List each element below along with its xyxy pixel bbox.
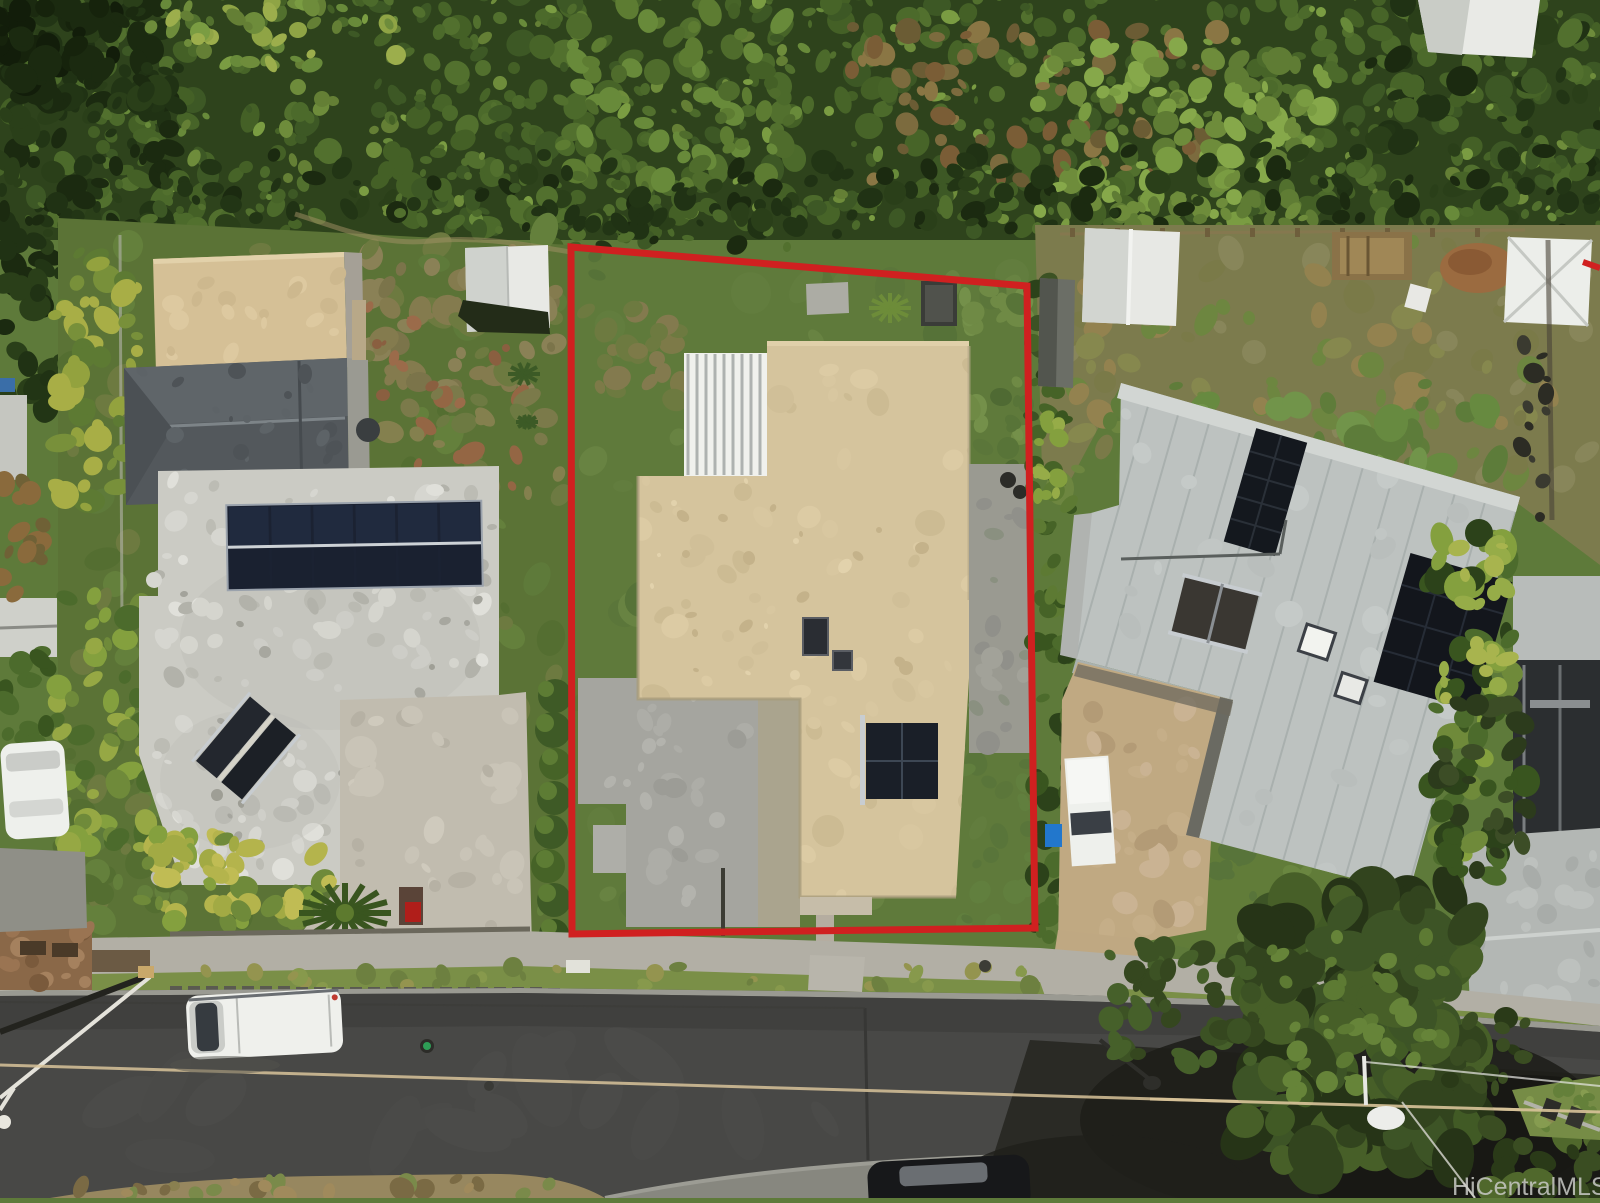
svg-text:HiCentralMLS: HiCentralMLS (1452, 1173, 1600, 1198)
